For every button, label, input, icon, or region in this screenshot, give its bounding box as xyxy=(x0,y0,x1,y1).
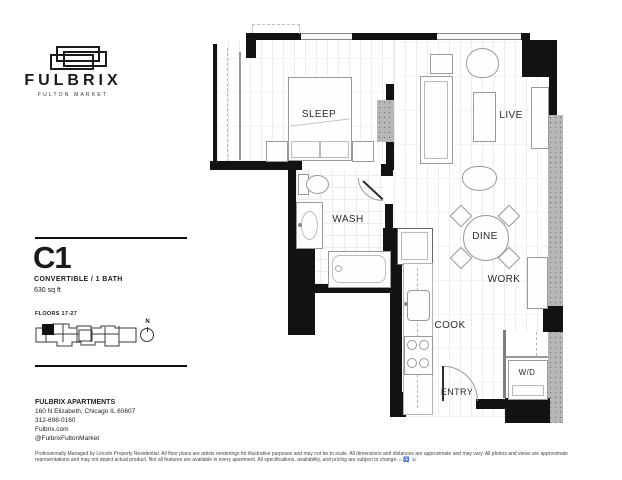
wall-block-bottomright xyxy=(505,398,550,423)
legal-disclaimer: Professionally Managed by Lincoln Proper… xyxy=(35,451,591,464)
unit-type: CONVERTIBLE / 1 BATH xyxy=(34,276,123,283)
column-right xyxy=(548,115,563,423)
armchair-bottom xyxy=(462,166,497,191)
kitchen-sink xyxy=(407,290,430,321)
window-top-left xyxy=(301,33,352,40)
burner-2 xyxy=(419,340,429,350)
work-desk xyxy=(527,257,548,309)
coffee-table xyxy=(473,92,496,142)
floors-label: FLOORS 17-27 xyxy=(35,311,77,317)
contact-name: FULBRIX APARTMENTS xyxy=(35,398,135,407)
wall-left xyxy=(213,44,217,164)
wall-bath-left xyxy=(288,170,296,250)
window-left-glazing xyxy=(239,52,241,160)
label-wd: W/D xyxy=(515,368,539,377)
compass-tick xyxy=(147,327,148,332)
brand-tagline: FULTON MARKET xyxy=(18,92,128,98)
bath-sink xyxy=(301,211,318,240)
refrigerator-inner xyxy=(401,232,428,260)
washer-dryer-inner xyxy=(512,385,544,396)
label-cook: COOK xyxy=(431,320,469,331)
wall-bottom-mid xyxy=(476,399,508,409)
label-wash: WASH xyxy=(329,214,367,225)
label-sleep: SLEEP xyxy=(295,109,343,120)
contact-website: Fulbrix.com xyxy=(35,425,135,434)
divider-top xyxy=(35,237,187,239)
wall-right-upper xyxy=(549,75,557,117)
balcony-dash-outline xyxy=(252,24,300,34)
label-entry: ENTRY xyxy=(437,387,477,397)
nightstand-left xyxy=(266,141,288,162)
bed-pillow-left xyxy=(291,141,320,158)
contact-social: @FulbrixFultonMarket xyxy=(35,434,135,443)
brand-name: FULBRIX xyxy=(18,72,128,90)
dash-left xyxy=(227,48,228,162)
media-console xyxy=(531,87,549,149)
keymap-unit-highlight xyxy=(42,324,54,335)
wall-wd-top xyxy=(506,356,548,358)
bed-pillow-right xyxy=(320,141,349,158)
kitchen-faucet xyxy=(404,302,408,306)
wall-wd-left xyxy=(503,330,506,398)
column-divider xyxy=(377,100,394,142)
wall-sleep-bottom xyxy=(210,161,302,170)
sofa-cushion xyxy=(424,81,448,159)
wall-block-wd-corner xyxy=(543,306,563,332)
building-keymap xyxy=(33,321,139,349)
contact-phone: 312-698-0160 xyxy=(35,416,135,425)
burner-1 xyxy=(407,340,417,350)
contact-block: FULBRIX APARTMENTS 160 N Elizabeth, Chic… xyxy=(35,398,135,443)
nightstand-right xyxy=(352,141,374,162)
label-dine: DINE xyxy=(467,231,503,242)
label-work: WORK xyxy=(485,274,523,285)
side-table xyxy=(430,54,453,74)
burner-3 xyxy=(407,358,417,368)
window-top-right xyxy=(437,33,521,40)
logo-rect-3 xyxy=(50,54,94,70)
dash-wd-door xyxy=(536,332,537,356)
toilet-bowl xyxy=(306,175,329,194)
compass-label: N xyxy=(140,319,155,325)
label-live: LIVE xyxy=(494,110,528,121)
burner-4 xyxy=(419,358,429,368)
wall-block-topright xyxy=(522,40,557,77)
sink-faucet xyxy=(298,223,302,227)
armchair-top xyxy=(466,48,499,78)
unit-area: 630 sq ft xyxy=(34,287,61,294)
divider-bottom xyxy=(35,365,187,367)
wall-corner-topleft xyxy=(246,33,256,58)
unit-name: C1 xyxy=(33,240,71,276)
bathtub-drain xyxy=(335,265,342,272)
wall-bath-right-mid xyxy=(385,204,393,230)
floorplan-sheet: FULBRIX FULTON MARKET C1 CONVERTIBLE / 1… xyxy=(0,0,622,480)
contact-address: 160 N Elizabeth, Chicago IL 60607 xyxy=(35,407,135,416)
